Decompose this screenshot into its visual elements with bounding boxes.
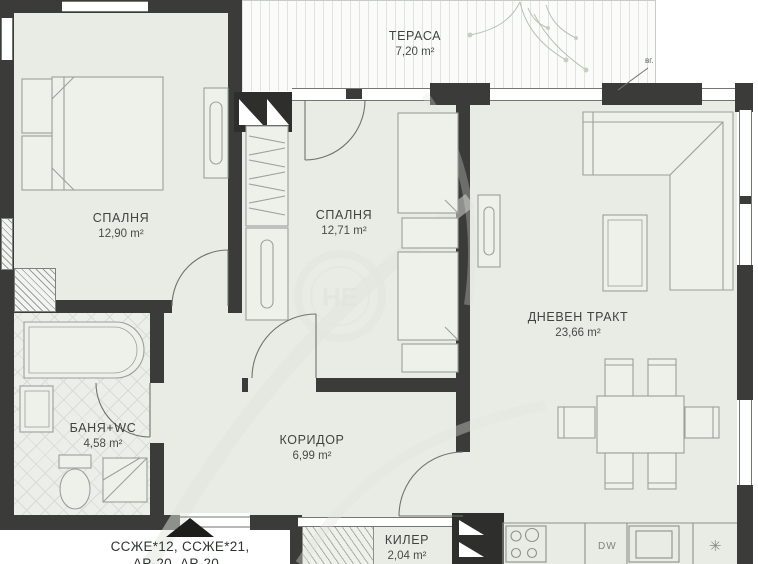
wardrobe-icon (246, 126, 288, 226)
room-label-storage: КИЛЕР 2,04 m² (385, 532, 429, 564)
kitchen-counter (503, 523, 737, 564)
nightstand-icon (22, 136, 52, 190)
door-living (399, 452, 463, 516)
room-label-living: ДНЕВЕН ТРАКТ 23,66 m² (528, 309, 629, 341)
dishwasher-label: DW (598, 541, 617, 552)
bed-single-icon (398, 113, 458, 372)
bed-double-icon (52, 77, 163, 190)
room-name: КОРИДОР (280, 432, 345, 448)
plan-overlay: НЕ (0, 0, 758, 564)
door-bedroom1 (172, 250, 228, 306)
room-area: 2,04 m² (385, 548, 429, 564)
room-area: 7,20 m² (389, 44, 441, 60)
plan-codes-line2: АР-20, АР-20 (133, 556, 219, 564)
room-label-corridor: КОРИДОР 6,99 m² (280, 432, 345, 464)
room-area: 23,66 m² (528, 325, 629, 341)
toilet-icon (59, 455, 91, 509)
room-label-bedroom2: СПАЛНЯ 12,71 m² (316, 207, 372, 239)
room-name: ТЕРАСА (389, 28, 441, 44)
room-label-bedroom1: СПАЛНЯ 12,90 m² (93, 210, 149, 242)
floor-plan: НЕ (0, 0, 758, 564)
coffee-table-icon (603, 215, 647, 291)
room-label-terrace: ТЕРАСА 7,20 m² (389, 28, 441, 60)
room-name: СПАЛНЯ (316, 207, 372, 223)
radiator-icon (246, 228, 288, 320)
dining-table-icon (597, 396, 684, 453)
room-area: 6,99 m² (280, 448, 345, 464)
note-leader-line (618, 68, 648, 90)
room-area: 12,90 m² (93, 226, 149, 242)
stove-icon (506, 526, 546, 562)
room-area: 4,58 m² (70, 436, 137, 452)
room-area: 12,71 m² (316, 223, 372, 239)
top-right-note: вг. (645, 56, 653, 65)
room-name: БАНЯ+WC (70, 420, 137, 436)
vent-shaft-kitchen (452, 513, 504, 564)
appliance-symbol: ✳ (709, 537, 722, 555)
plan-codes-line1: ССЖЕ*12, ССЖЕ*21, (111, 539, 250, 554)
room-name: СПАЛНЯ (93, 210, 149, 226)
nightstand-icon (22, 79, 52, 133)
plant-icon (468, 2, 589, 73)
room-name: ДНЕВЕН ТРАКТ (528, 309, 629, 325)
bathtub-icon (24, 322, 144, 378)
washing-machine-icon (103, 458, 147, 502)
radiator-icon (204, 88, 228, 178)
bathroom-sink-icon (20, 386, 53, 432)
kitchen-sink-icon (629, 526, 679, 562)
room-name: КИЛЕР (385, 532, 429, 548)
room-label-bathroom: БАНЯ+WC 4,58 m² (70, 420, 137, 452)
door-terrace-bedroom2 (305, 100, 365, 160)
radiator-icon (478, 195, 500, 267)
watermark-text: НЕ (322, 282, 358, 312)
